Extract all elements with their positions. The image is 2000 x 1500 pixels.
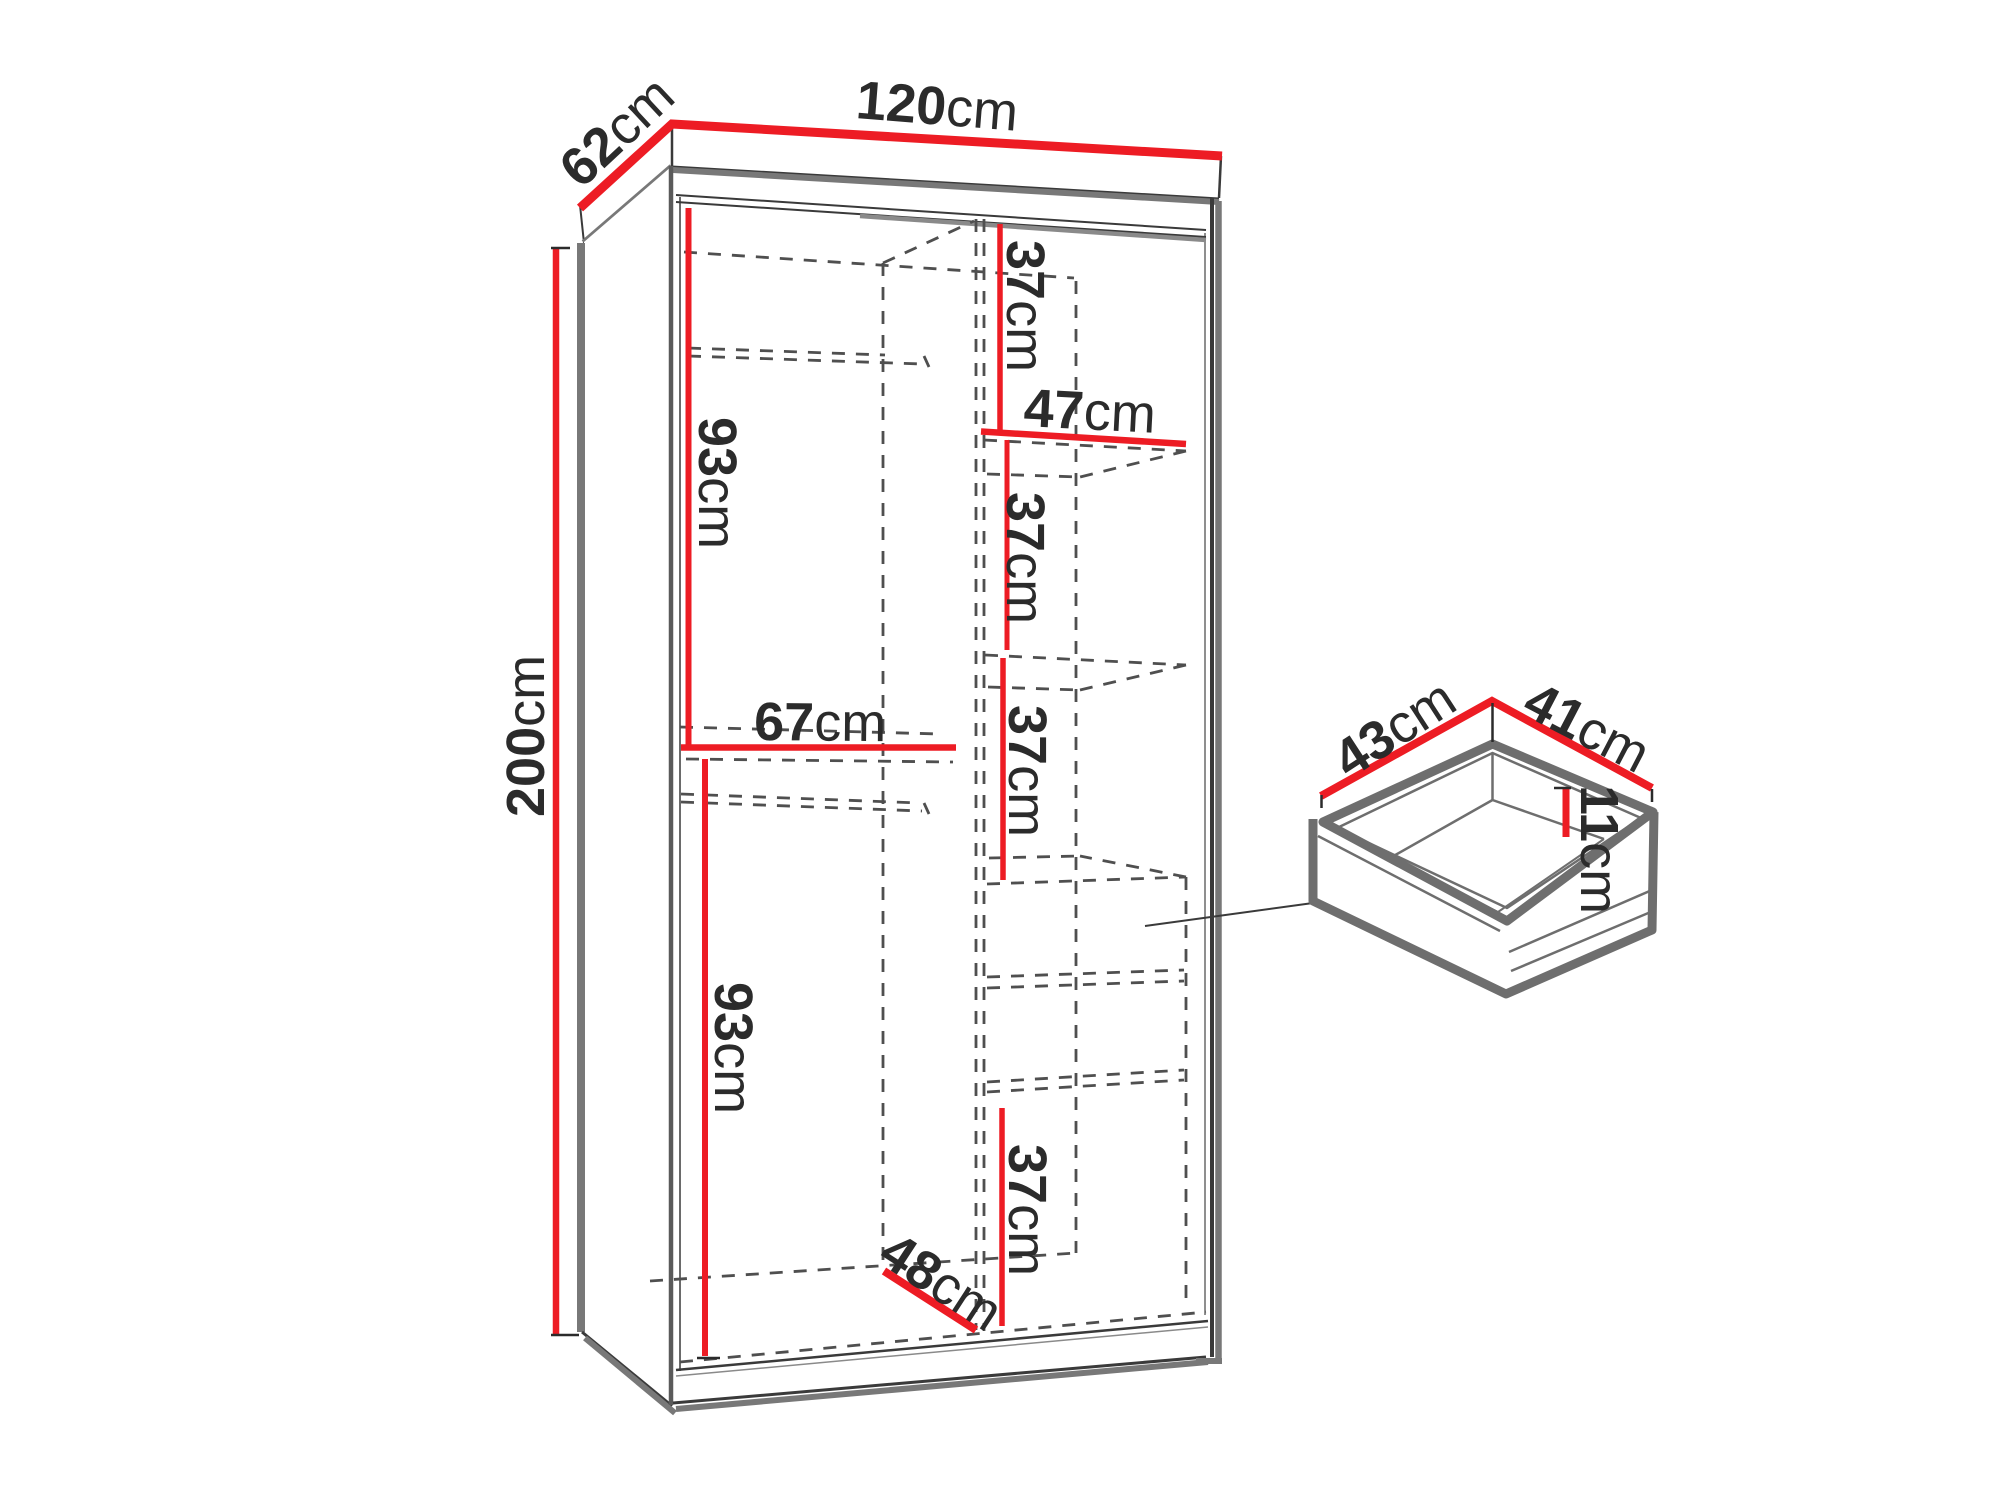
svg-text:93cm: 93cm [703,982,763,1114]
svg-text:47cm: 47cm [1022,378,1157,445]
svg-text:67cm: 67cm [754,692,887,753]
svg-text:120cm: 120cm [854,70,1020,143]
svg-text:37cm: 37cm [995,240,1055,372]
svg-text:37cm: 37cm [997,1144,1057,1276]
svg-text:93cm: 93cm [687,417,747,549]
svg-text:11cm: 11cm [1569,785,1629,914]
svg-text:200cm: 200cm [496,655,556,817]
svg-text:37cm: 37cm [997,705,1057,837]
svg-text:37cm: 37cm [995,492,1055,624]
